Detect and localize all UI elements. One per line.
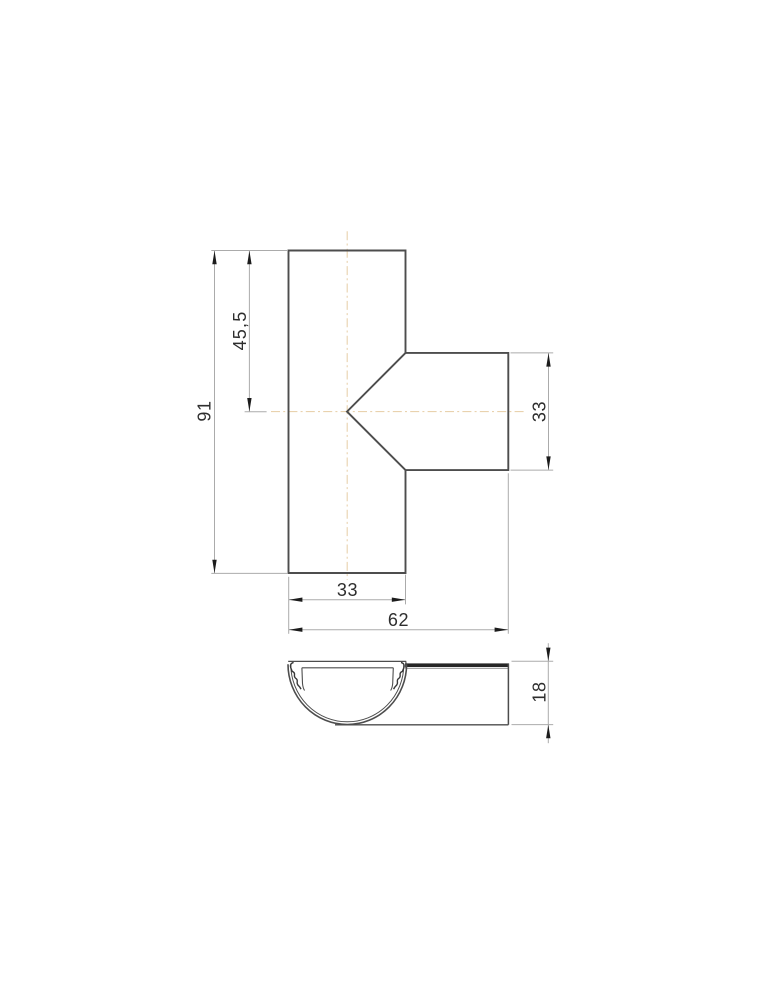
svg-text:45,5: 45,5	[230, 311, 250, 351]
svg-text:91: 91	[195, 400, 215, 421]
svg-text:62: 62	[388, 610, 409, 630]
svg-text:33: 33	[337, 580, 358, 600]
svg-text:18: 18	[529, 681, 549, 702]
svg-text:33: 33	[530, 401, 550, 422]
